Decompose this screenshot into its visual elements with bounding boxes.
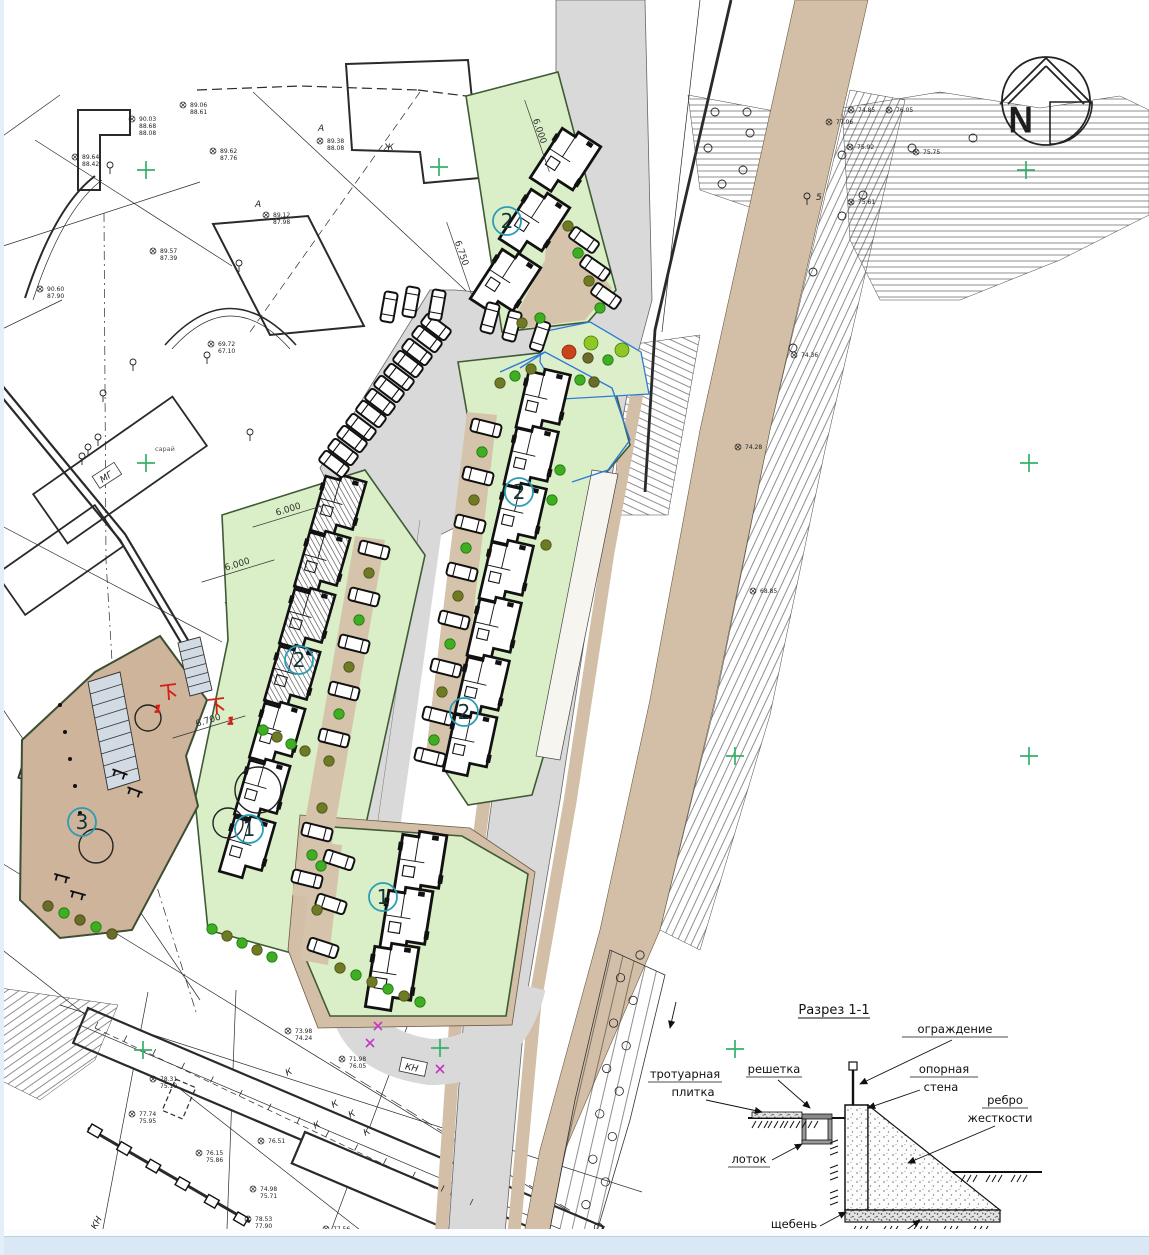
elevation-value: 89.62 xyxy=(220,148,237,155)
elevation-value: 75.10 xyxy=(160,1083,177,1090)
elevation-value: 74.28 xyxy=(745,444,762,451)
elevation-value: 89.57 xyxy=(160,248,177,255)
tree xyxy=(510,371,520,381)
elevation-value: 75.75 xyxy=(923,149,940,156)
unit-number: 3 xyxy=(76,810,89,834)
tree xyxy=(91,922,101,932)
shed-label: сарай xyxy=(155,445,175,453)
elevation-value: 74.98 xyxy=(260,1186,277,1193)
parked-car xyxy=(380,291,398,323)
tree xyxy=(272,732,282,742)
tree xyxy=(573,248,583,258)
elevation-value: 87.39 xyxy=(160,255,177,262)
elevation-value: 89.64 xyxy=(82,154,99,161)
elevation-value: 88.42 xyxy=(82,161,99,168)
grid-cross xyxy=(137,161,155,179)
grid-cross xyxy=(726,1040,744,1058)
tree xyxy=(43,901,53,911)
tree xyxy=(351,970,361,980)
elevation-value: 73.98 xyxy=(295,1028,312,1035)
tree xyxy=(207,924,217,934)
soil-tick xyxy=(830,1190,838,1205)
elevation-value: 76.05 xyxy=(896,107,913,114)
tree xyxy=(383,984,393,994)
tree xyxy=(335,963,345,973)
elevation-mark: 89.3888.08 xyxy=(317,138,344,152)
tree xyxy=(354,615,364,625)
tree xyxy=(555,465,565,475)
slope-direction-arrow xyxy=(670,1002,676,1028)
elevation-mark: 71.9876.05 xyxy=(339,1056,366,1070)
elevation-value: 69.72 xyxy=(218,341,235,348)
elevation-mark: 89.5787.39 xyxy=(150,248,177,262)
elevation-value: 75.86 xyxy=(206,1157,223,1164)
boundary-dot xyxy=(58,703,62,707)
elevation-value: 75.95 xyxy=(139,1118,156,1125)
tree xyxy=(237,938,247,948)
letter-k: К xyxy=(284,1067,295,1079)
elevation-value: 88.08 xyxy=(327,145,344,152)
tree xyxy=(445,639,455,649)
tree xyxy=(316,861,326,871)
soil-tick xyxy=(752,1121,768,1128)
tree xyxy=(575,375,585,385)
tree xyxy=(603,355,613,365)
unit-number: 2 xyxy=(458,700,471,724)
tree xyxy=(252,945,262,955)
tree xyxy=(107,929,117,939)
elevation-mark: 89.6287.76 xyxy=(210,148,237,162)
elevation-value: 88.08 xyxy=(139,130,156,137)
tree xyxy=(589,377,599,387)
soil-tick xyxy=(784,1121,800,1128)
tree xyxy=(469,495,479,505)
tree xyxy=(415,997,425,1007)
elevation-value: 74.36 xyxy=(801,352,818,359)
grid-cross xyxy=(430,158,448,176)
deciduous-tree-symbol xyxy=(95,434,101,446)
elevation-value: 78.31 xyxy=(160,1076,177,1083)
tree xyxy=(477,447,487,457)
tree xyxy=(312,905,322,915)
elevation-value: 90.60 xyxy=(47,286,64,293)
elevation-value: 74.85 xyxy=(858,107,875,114)
north-letter: N xyxy=(1008,101,1033,141)
tree xyxy=(300,746,310,756)
elevation-value: 88.61 xyxy=(190,109,207,116)
label-paving-2: плитка xyxy=(671,1085,714,1099)
elevation-value: 75.61 xyxy=(858,199,875,206)
unit-number: 2 xyxy=(513,480,526,504)
boundary-dot xyxy=(73,784,77,788)
unit-number: 1 xyxy=(243,817,256,841)
label-grate: решетка xyxy=(748,1062,801,1076)
tree xyxy=(541,540,551,550)
boundary-dot xyxy=(63,730,67,734)
tree xyxy=(583,353,593,363)
elevation-value: 87.76 xyxy=(220,155,237,162)
tree xyxy=(584,276,594,286)
elevation-mark: 76.51 xyxy=(258,1138,285,1145)
deciduous-tree-symbol xyxy=(107,162,113,174)
unit-number: 1 xyxy=(377,885,390,909)
unit-number: 2 xyxy=(501,209,514,233)
section-title: Разрез 1-1 xyxy=(798,1003,869,1018)
elevation-value: 76.05 xyxy=(349,1063,366,1070)
tree xyxy=(334,709,344,719)
elevation-mark: 89.0688.61 xyxy=(180,102,207,116)
elevation-mark: 69.7267.10 xyxy=(208,341,235,355)
unit-number: 2 xyxy=(293,648,306,672)
elevation-value: 77.06 xyxy=(836,119,853,126)
soil-tick xyxy=(830,1165,838,1180)
drawing-viewport: ККККК 2222113 6.0006.7506.0006.0006.700 … xyxy=(0,0,1149,1255)
elevation-mark: 90.0388.6888.08 xyxy=(129,116,156,137)
letter-k: К xyxy=(330,1099,341,1111)
elevation-mark: 78.3175.10 xyxy=(150,1076,177,1090)
letter-a1: А xyxy=(317,124,324,134)
tree xyxy=(75,915,85,925)
elevation-value: 89.06 xyxy=(190,102,207,109)
elevation-value: 78.53 xyxy=(255,1216,272,1223)
tree xyxy=(547,495,557,505)
label-rib-2: жесткости xyxy=(968,1111,1033,1125)
elevation-value: 89.38 xyxy=(327,138,344,145)
elevation-mark: 74.9875.71 xyxy=(250,1186,277,1200)
grid-cross xyxy=(1020,747,1038,765)
elevation-value: 88.68 xyxy=(139,123,156,130)
tree-mark-5: 5 xyxy=(816,193,822,203)
soil-tick xyxy=(830,1140,838,1155)
tree xyxy=(222,931,232,941)
soil-tick xyxy=(768,1121,784,1128)
tree xyxy=(286,739,296,749)
grid-cross xyxy=(1020,454,1038,472)
tree xyxy=(535,313,545,323)
site-plan-drawing: ККККК 2222113 6.0006.7506.0006.0006.700 … xyxy=(0,0,1149,1255)
label-wall-2: стена xyxy=(924,1080,959,1094)
tree xyxy=(562,345,576,359)
elevation-value: 90.03 xyxy=(139,116,156,123)
tree xyxy=(344,662,354,672)
tree xyxy=(258,725,268,735)
tree xyxy=(563,221,573,231)
elevation-value: 75.92 xyxy=(857,144,874,151)
vertical-scrollbar[interactable] xyxy=(0,0,4,1255)
elevation-mark: 76.1575.86 xyxy=(196,1150,223,1164)
elevation-value: 76.51 xyxy=(268,1138,285,1145)
horizontal-scrollbar[interactable] xyxy=(0,1236,1149,1255)
elevation-value: 87.90 xyxy=(47,293,64,300)
section-cut-number: 1 xyxy=(155,705,161,715)
tree xyxy=(59,908,69,918)
elevation-value: 89.12 xyxy=(273,212,290,219)
section-detail: Разрез 1-1 ограждение тротуарная плитка xyxy=(648,1002,1042,1248)
letter-zh: Ж xyxy=(383,143,394,153)
tree xyxy=(364,568,374,578)
label-rib-1: ребро xyxy=(987,1093,1023,1107)
tree xyxy=(461,543,471,553)
letter-a2: А xyxy=(254,200,261,210)
elevation-value: 74.24 xyxy=(295,1035,312,1042)
tree xyxy=(453,591,463,601)
deciduous-tree-symbol xyxy=(130,359,136,371)
tree xyxy=(317,803,327,813)
tree xyxy=(526,364,536,374)
elevation-value: 76.15 xyxy=(206,1150,223,1157)
elevation-value: 68.85 xyxy=(760,588,777,595)
soil-tick xyxy=(1011,1175,1027,1182)
tree xyxy=(495,378,505,388)
tree xyxy=(437,687,447,697)
label-paving-1: тротуарная xyxy=(650,1067,720,1081)
boundary-dot xyxy=(68,757,72,761)
tree xyxy=(517,318,527,328)
tree xyxy=(595,303,605,313)
elevation-value: 77.74 xyxy=(139,1111,156,1118)
deciduous-tree-symbol xyxy=(247,429,253,441)
elevation-value: 75.71 xyxy=(260,1193,277,1200)
tree xyxy=(584,336,598,350)
tree xyxy=(367,977,377,987)
label-wall-1: опорная xyxy=(919,1062,969,1076)
tree xyxy=(324,756,334,766)
deciduous-tree-symbol xyxy=(204,352,210,364)
elevation-value: 71.98 xyxy=(349,1056,366,1063)
elevation-value: 87.98 xyxy=(273,219,290,226)
elevation-mark: 90.6087.90 xyxy=(37,286,64,300)
tree xyxy=(429,735,439,745)
soil-tick xyxy=(986,1175,1002,1182)
tree xyxy=(267,952,277,962)
tree xyxy=(307,850,317,860)
section-cut-number: 1 xyxy=(228,717,234,727)
tree xyxy=(399,991,409,1001)
grid-cross xyxy=(137,454,155,472)
label-tray: лоток xyxy=(731,1152,766,1166)
elevation-value: 67.10 xyxy=(218,348,235,355)
tree xyxy=(615,343,629,357)
section-drawing xyxy=(748,1062,1042,1222)
elevation-mark: 77.7475.95 xyxy=(129,1111,156,1125)
label-fence: ограждение xyxy=(918,1022,993,1036)
